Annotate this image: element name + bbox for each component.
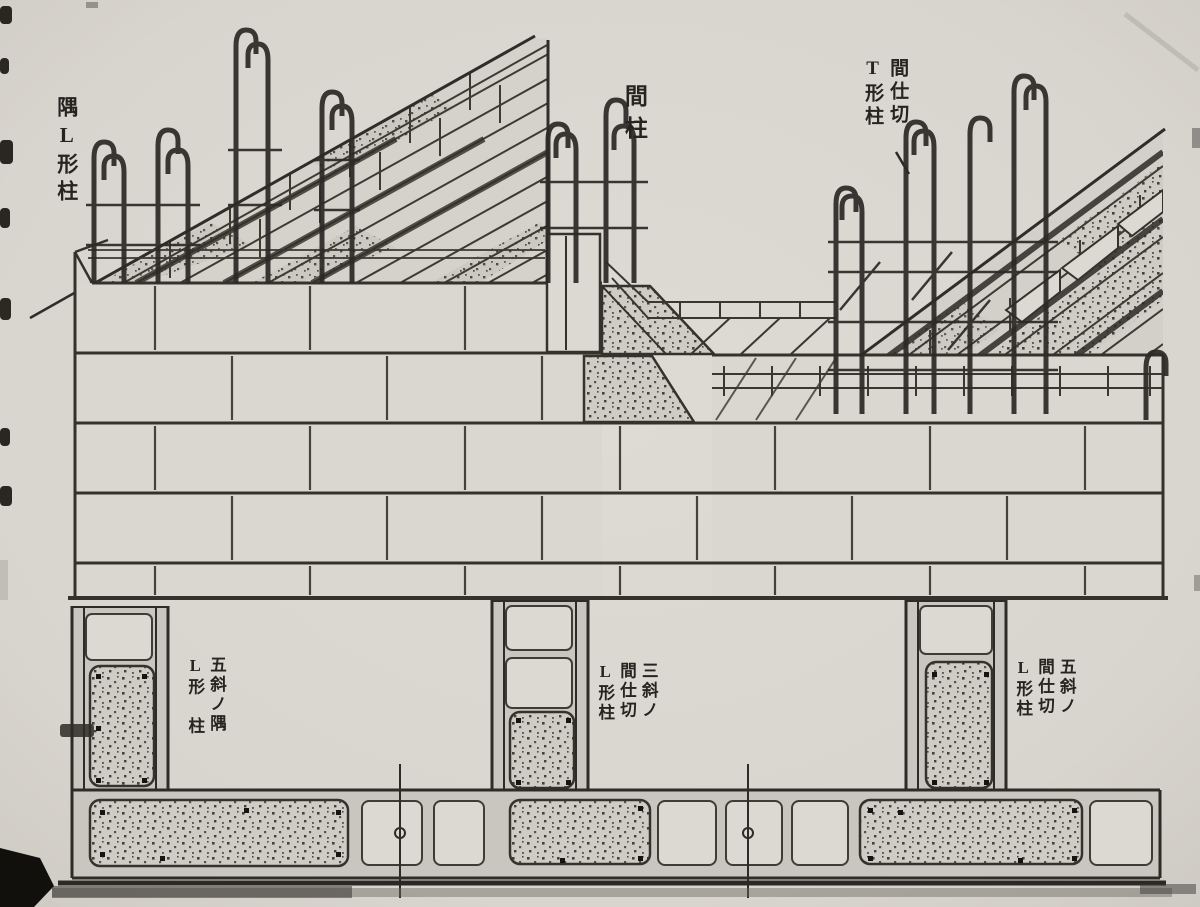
label-partition-t-column: 間仕切 T形柱	[860, 58, 910, 129]
label-stud-column: 間柱	[618, 84, 648, 148]
label-plan-corner-l-column: 五斜ノ隅 L形 柱	[184, 656, 228, 737]
label-plan-partition-right: 五斜ノ 間仕切 L形柱	[1012, 658, 1077, 719]
plan-center-junction	[510, 712, 574, 788]
plan-right-junction	[926, 662, 992, 788]
scanned-diagram-page: 隅L形柱 間柱 間仕切 T形柱 五斜ノ隅 L形 柱 三斜ノ 間仕切 L形柱 五斜…	[0, 0, 1200, 907]
diagram-drawing	[0, 0, 1200, 907]
label-plan-partition-center: 三斜ノ 間仕切 L形柱	[594, 662, 659, 723]
label-corner-l-column: 隅L形柱	[52, 96, 80, 207]
plan-left-edge-mark	[60, 724, 94, 737]
